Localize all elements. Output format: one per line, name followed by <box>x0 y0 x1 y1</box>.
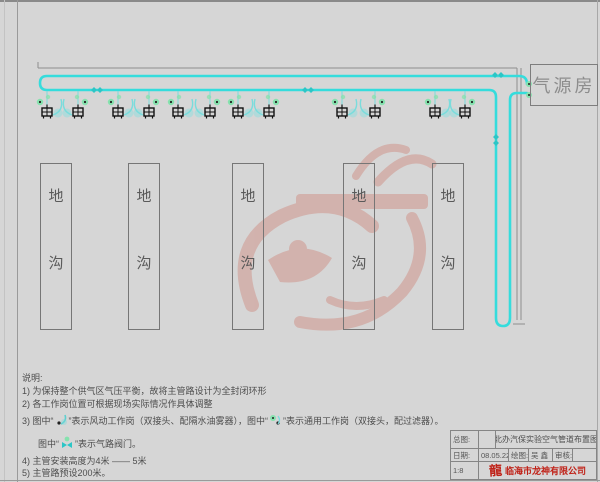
drawing-sheet: 地沟地沟地沟地沟地沟 气源房 说明: 1) 为保持整个供 <box>0 0 600 482</box>
air-source-room: 气源房 <box>530 64 598 106</box>
work-station <box>168 91 194 119</box>
sheet-border-bottom <box>0 480 600 481</box>
note-2: 2) 各工作岗位置可根据现场实际情况作具体调整 <box>22 397 213 410</box>
title-block-label-drawing: 总图: <box>451 431 478 448</box>
pipe-valve <box>302 87 314 93</box>
title-block-label-reviewer: 审核: <box>552 449 572 461</box>
title-block-label-date: 日期: <box>451 449 478 461</box>
title-block-reviewer <box>572 449 596 461</box>
work-station <box>228 91 254 119</box>
pneumatic-station-icon <box>55 414 68 428</box>
work-station <box>195 91 221 119</box>
company-cell: 龍 临海市龙神有限公司 <box>478 462 596 479</box>
drawing-title: 北办汽保实验空气管道布置图 <box>495 431 596 448</box>
work-station <box>450 91 476 119</box>
note-5: 5) 主管路预设200米。 <box>22 466 111 479</box>
note-1: 1) 为保持整个供气区气压平衡，故将主管路设计为全封闭环形 <box>22 384 267 397</box>
work-station <box>254 91 280 119</box>
sheet-border-left-outer <box>4 0 5 482</box>
note-3: 3) 图中“”表示风动工作岗（双接头、配隔水油雾器），图中“”表示通用工作岗（双… <box>22 413 444 427</box>
title-block-scale: 1:8 <box>451 462 478 479</box>
work-station <box>360 91 386 119</box>
title-block-empty-1 <box>478 431 495 448</box>
title-block-label-drafter: 绘图: <box>508 449 528 461</box>
company-name: 临海市龙神有限公司 <box>505 464 586 477</box>
company-dragon-logo-icon: 龍 <box>489 464 503 478</box>
work-station <box>37 91 63 119</box>
pipe-valve <box>91 87 103 93</box>
work-station <box>425 91 451 119</box>
note-3b: 图中“”表示气路阀门。 <box>38 435 141 451</box>
air-source-room-label: 气源房 <box>533 72 596 98</box>
valve-icon <box>60 436 74 452</box>
title-block: 总图: 北办汽保实验空气管道布置图 日期: 08.05.22 绘图: 吴 鑫 审… <box>450 430 597 480</box>
title-block-date: 08.05.22 <box>478 449 508 461</box>
work-station <box>332 91 358 119</box>
sheet-border-left-inner <box>17 0 18 482</box>
general-station-icon <box>269 414 282 428</box>
title-block-drafter: 吴 鑫 <box>528 449 552 461</box>
work-station <box>108 91 134 119</box>
sheet-border-top <box>0 0 600 2</box>
work-station <box>63 91 89 119</box>
notes-heading: 说明: <box>22 371 43 384</box>
work-station <box>134 91 160 119</box>
